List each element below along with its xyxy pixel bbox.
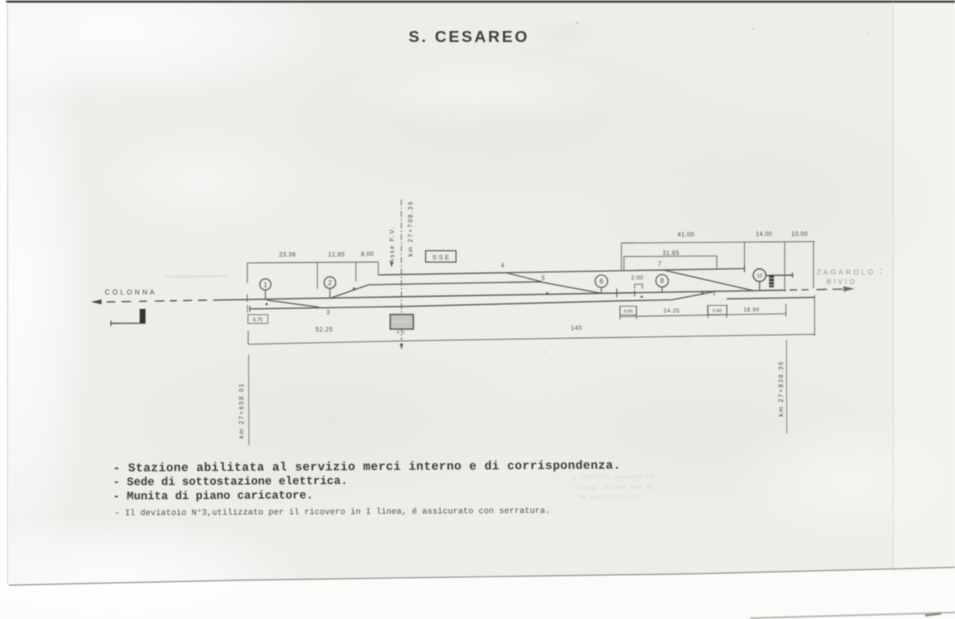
svg-text:ne aicu cotrs vl: ne aicu cotrs vl [578,494,641,501]
svg-text:- Munita di piano caricatore.: - Munita di piano caricatore. [113,489,313,503]
svg-text:km 27+658.01: km 27+658.01 [238,382,245,438]
svg-text:BIVIO: BIVIO [827,277,858,286]
svg-text:6.75: 6.75 [253,317,263,323]
svg-text:- Sede di sottostazione elettr: - Sede di sottostazione elettrica. [113,475,348,489]
svg-text:140: 140 [571,326,583,332]
svg-text:Asse F.V.: Asse F.V. [389,226,396,263]
svg-text:10: 10 [757,274,763,280]
svg-text:ZAGAROLO: ZAGAROLO [817,267,876,276]
svg-text:31.85: 31.85 [662,251,679,257]
svg-text:COLONNA: COLONNA [105,290,157,297]
svg-text:10.00: 10.00 [791,232,808,238]
svg-text:F.V.: F.V. [397,330,407,335]
svg-text:6: 6 [599,279,603,286]
svg-text:a ilellrtv eqtaocf rn: a ilellrtv eqtaocf rn [572,474,654,481]
svg-text:41.00: 41.00 [677,233,694,239]
svg-text:24.25: 24.25 [664,308,681,314]
svg-text:otsvgi ittete bsd ae: otsvgi ittete bsd ae [575,484,653,491]
svg-text:52.25: 52.25 [316,328,334,334]
svg-text:18.90: 18.90 [744,307,760,313]
svg-text:14.00: 14.00 [756,232,773,238]
svg-text:12.85: 12.85 [328,252,345,258]
svg-text:km 27+838.36: km 27+838.36 [778,360,785,416]
svg-text:8.00: 8.00 [361,252,374,258]
svg-text:SSE: SSE [432,254,451,261]
svg-text:2: 2 [328,280,332,287]
svg-text:23.36: 23.36 [279,253,296,259]
svg-text:2.00: 2.00 [631,276,643,282]
svg-text:5.90: 5.90 [713,308,722,313]
svg-text:5.00: 5.00 [624,309,633,314]
svg-text:- Stazione abilitata al serviz: - Stazione abilitata al servizio merci i… [113,459,621,476]
svg-text:km 27+708.36: km 27+708.36 [408,200,415,256]
svg-text:S. CESAREO: S. CESAREO [409,29,530,46]
svg-text:1: 1 [263,282,267,289]
svg-text:8: 8 [660,278,664,285]
